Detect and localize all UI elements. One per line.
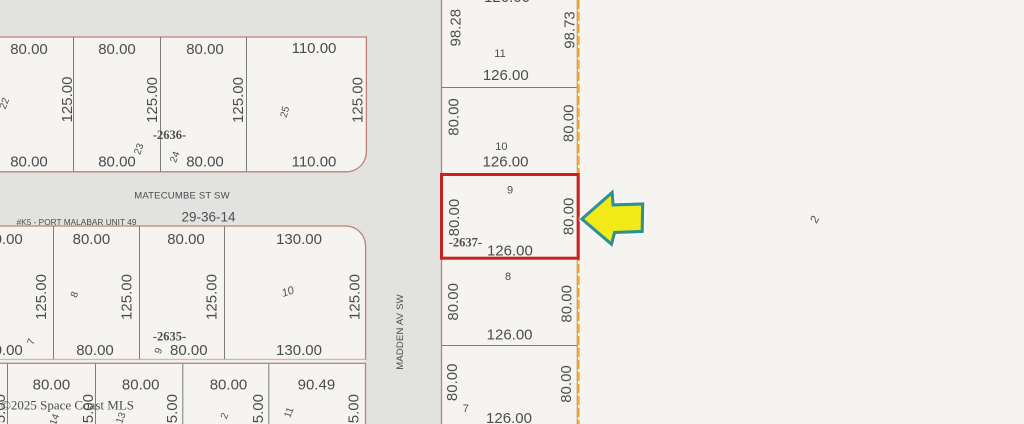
svg-text:80.00: 80.00 bbox=[167, 231, 205, 248]
svg-text:125.00: 125.00 bbox=[347, 274, 364, 320]
svg-text:80.00: 80.00 bbox=[558, 365, 575, 403]
svg-text:110.00: 110.00 bbox=[292, 40, 337, 57]
svg-text:80.00: 80.00 bbox=[0, 231, 23, 248]
svg-text:80.00: 80.00 bbox=[446, 199, 463, 237]
svg-text:80.00: 80.00 bbox=[170, 342, 208, 359]
svg-text:125.00: 125.00 bbox=[144, 77, 161, 123]
svg-text:80.00: 80.00 bbox=[445, 98, 462, 136]
svg-text:9: 9 bbox=[507, 185, 513, 197]
svg-text:80.00: 80.00 bbox=[98, 154, 136, 171]
svg-text:©2025 Space Coast MLS: ©2025 Space Coast MLS bbox=[1, 398, 134, 413]
svg-text:MATECUMBE ST SW: MATECUMBE ST SW bbox=[134, 191, 230, 202]
svg-text:80.00: 80.00 bbox=[186, 41, 224, 58]
svg-text:80.00: 80.00 bbox=[445, 283, 462, 321]
svg-text:126.00: 126.00 bbox=[483, 67, 529, 84]
svg-text:80.00: 80.00 bbox=[444, 364, 461, 402]
svg-text:-2635-: -2635- bbox=[153, 329, 186, 343]
svg-text:126.00: 126.00 bbox=[484, 0, 530, 6]
svg-text:125.00: 125.00 bbox=[250, 394, 267, 424]
svg-text:98.73: 98.73 bbox=[562, 11, 579, 49]
svg-text:80.00: 80.00 bbox=[186, 154, 224, 171]
svg-text:80.00: 80.00 bbox=[98, 41, 136, 58]
svg-text:125.00: 125.00 bbox=[204, 274, 221, 320]
svg-text:125.00: 125.00 bbox=[33, 274, 50, 320]
svg-text:80.00: 80.00 bbox=[122, 376, 160, 393]
svg-text:29-36-14: 29-36-14 bbox=[181, 210, 236, 225]
svg-text:125.00: 125.00 bbox=[164, 394, 181, 424]
svg-text:80.00: 80.00 bbox=[0, 342, 23, 359]
svg-text:80.00: 80.00 bbox=[210, 376, 248, 393]
svg-text:80.00: 80.00 bbox=[560, 198, 577, 236]
svg-text:80.00: 80.00 bbox=[560, 105, 577, 143]
svg-text:10: 10 bbox=[495, 141, 507, 153]
svg-text:-2637-: -2637- bbox=[449, 235, 482, 249]
svg-text:130.00: 130.00 bbox=[276, 231, 322, 248]
svg-text:125.00: 125.00 bbox=[59, 77, 76, 123]
svg-text:126.00: 126.00 bbox=[487, 327, 533, 344]
svg-text:80.00: 80.00 bbox=[76, 342, 114, 359]
svg-text:90.49: 90.49 bbox=[298, 376, 336, 393]
svg-text:80.00: 80.00 bbox=[10, 41, 48, 58]
svg-text:125.00: 125.00 bbox=[346, 394, 363, 424]
svg-text:80.00: 80.00 bbox=[73, 231, 111, 248]
svg-text:126.00: 126.00 bbox=[483, 154, 529, 171]
svg-text:126.00: 126.00 bbox=[486, 410, 532, 424]
svg-text:125.00: 125.00 bbox=[350, 77, 367, 123]
svg-text:7: 7 bbox=[463, 403, 469, 415]
svg-text:98.28: 98.28 bbox=[448, 9, 465, 47]
svg-text:80.00: 80.00 bbox=[10, 154, 48, 171]
svg-text:125.00: 125.00 bbox=[119, 274, 136, 320]
svg-text:8: 8 bbox=[505, 271, 511, 283]
svg-text:125.00: 125.00 bbox=[230, 77, 247, 123]
svg-text:80.00: 80.00 bbox=[558, 285, 575, 323]
svg-text:80.00: 80.00 bbox=[33, 376, 71, 393]
svg-text:110.00: 110.00 bbox=[292, 154, 337, 171]
svg-text:-2636-: -2636- bbox=[153, 128, 186, 142]
svg-text:MADDEN AV SW: MADDEN AV SW bbox=[395, 294, 406, 370]
svg-text:130.00: 130.00 bbox=[276, 342, 322, 359]
svg-text:11: 11 bbox=[494, 48, 505, 60]
